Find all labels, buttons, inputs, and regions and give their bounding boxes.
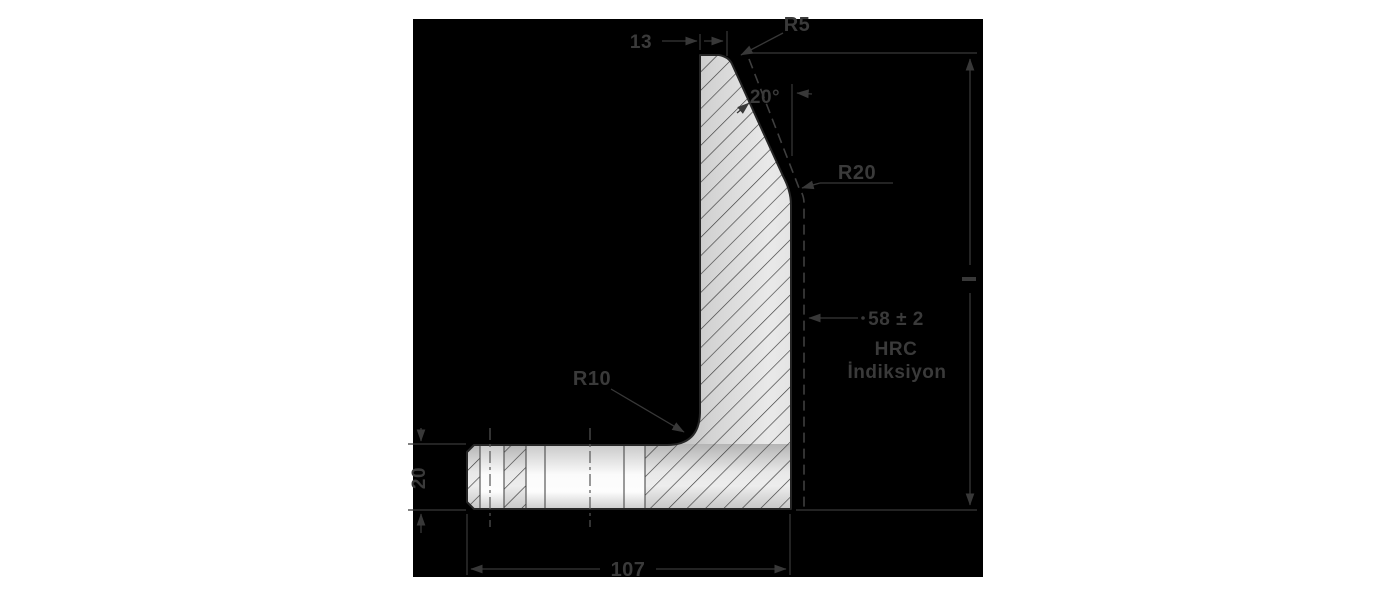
dim-r5-label: R5: [784, 14, 811, 36]
leader-dot: [861, 316, 865, 320]
dim-r20-label: R20: [838, 162, 876, 184]
dim-base-thickness-label: 20: [409, 467, 430, 489]
hardness-value: 58 ± 2: [868, 309, 924, 330]
dim-base-width-label: 107: [611, 559, 646, 581]
dim-r10-label: R10: [573, 368, 611, 390]
hardness-scale: HRC: [875, 339, 918, 360]
dim-face-angle-label: 20°: [750, 87, 780, 108]
engineering-drawing: 13 R5 20° R20 58 ± 2 HRC İndiksiyon R10 …: [0, 0, 1396, 594]
dim-top-width-label: 13: [630, 32, 652, 53]
bore-section-small: [480, 444, 504, 512]
page: 13 R5 20° R20 58 ± 2 HRC İndiksiyon R10 …: [0, 0, 1396, 594]
bore-section-large: [526, 444, 645, 512]
hardness-process: İndiksiyon: [848, 362, 947, 383]
